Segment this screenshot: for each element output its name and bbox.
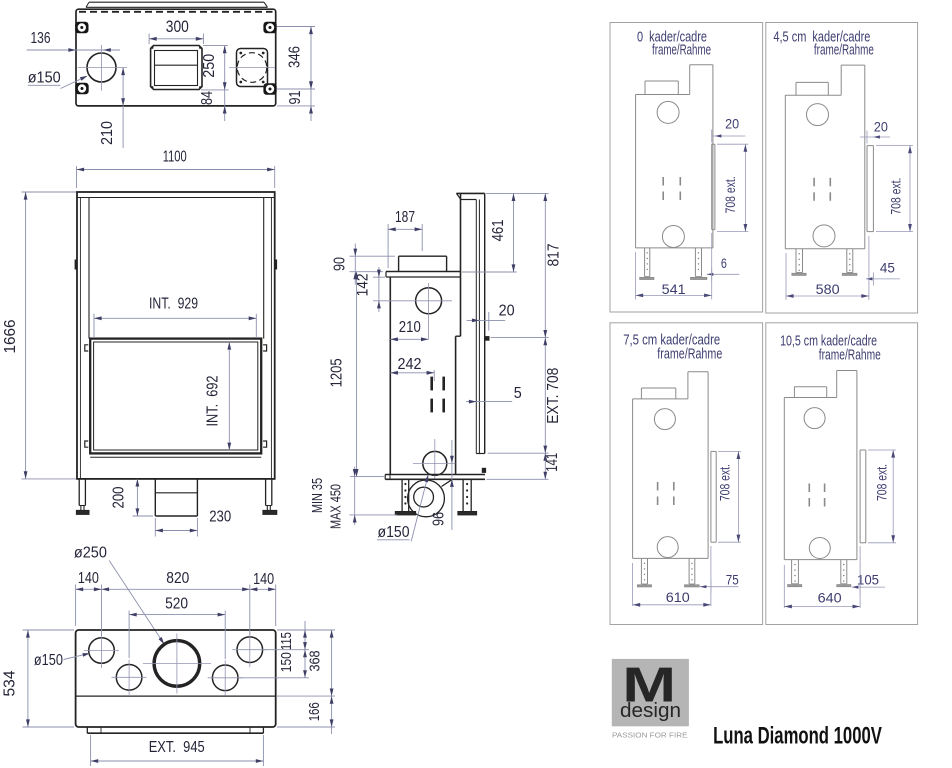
svg-text:817: 817 bbox=[546, 243, 563, 266]
svg-text:461: 461 bbox=[490, 219, 507, 241]
svg-text:140: 140 bbox=[253, 571, 274, 588]
svg-text:frame/Rahme: frame/Rahme bbox=[819, 347, 881, 364]
svg-text:20: 20 bbox=[499, 302, 515, 319]
svg-text:1666: 1666 bbox=[2, 319, 19, 353]
svg-text:INT. 929: INT. 929 bbox=[149, 295, 198, 312]
svg-text:INT. 692: INT. 692 bbox=[205, 375, 222, 426]
svg-text:84: 84 bbox=[199, 91, 216, 105]
svg-text:210: 210 bbox=[99, 121, 116, 145]
svg-text:250: 250 bbox=[201, 54, 218, 78]
svg-text:ø150: ø150 bbox=[378, 524, 410, 541]
svg-text:45: 45 bbox=[880, 260, 895, 276]
svg-text:708 ext.: 708 ext. bbox=[873, 464, 889, 501]
svg-text:346: 346 bbox=[286, 46, 303, 68]
svg-text:design: design bbox=[620, 700, 681, 722]
svg-text:75: 75 bbox=[726, 572, 739, 588]
svg-text:MAX 450: MAX 450 bbox=[328, 484, 345, 529]
svg-text:ø250: ø250 bbox=[74, 545, 107, 562]
svg-text:frame/Rahme: frame/Rahme bbox=[657, 346, 722, 363]
svg-text:187: 187 bbox=[395, 209, 415, 226]
svg-text:1100: 1100 bbox=[163, 148, 187, 165]
svg-text:141: 141 bbox=[544, 453, 561, 472]
svg-text:MIN 35: MIN 35 bbox=[309, 478, 326, 513]
svg-text:1205: 1205 bbox=[328, 358, 345, 387]
svg-text:115: 115 bbox=[278, 632, 295, 650]
svg-text:541: 541 bbox=[662, 281, 686, 297]
svg-text:136: 136 bbox=[31, 30, 51, 47]
svg-text:300: 300 bbox=[166, 18, 189, 36]
svg-text:580: 580 bbox=[816, 281, 840, 297]
svg-text:ø150: ø150 bbox=[28, 70, 61, 87]
svg-text:242: 242 bbox=[398, 356, 422, 373]
svg-text:6: 6 bbox=[721, 255, 727, 271]
svg-text:708 ext.: 708 ext. bbox=[717, 464, 733, 501]
svg-text:5: 5 bbox=[514, 385, 522, 402]
svg-text:640: 640 bbox=[818, 590, 842, 606]
svg-text:230: 230 bbox=[209, 508, 231, 525]
svg-text:166: 166 bbox=[306, 702, 323, 721]
svg-text:708 ext.: 708 ext. bbox=[887, 178, 903, 215]
svg-text:708 ext.: 708 ext. bbox=[722, 176, 738, 213]
svg-text:PASSION FOR FIRE: PASSION FOR FIRE bbox=[612, 730, 688, 739]
svg-text:frame/Rahme: frame/Rahme bbox=[814, 42, 874, 59]
svg-text:534: 534 bbox=[1, 670, 18, 696]
svg-text:368: 368 bbox=[307, 651, 324, 672]
svg-text:200: 200 bbox=[111, 486, 128, 508]
svg-text:EXT. 945: EXT. 945 bbox=[149, 739, 205, 756]
svg-text:Luna Diamond 1000V: Luna Diamond 1000V bbox=[713, 722, 882, 749]
svg-text:610: 610 bbox=[666, 589, 690, 605]
svg-text:96: 96 bbox=[431, 512, 448, 526]
svg-text:520: 520 bbox=[165, 596, 188, 613]
svg-text:frame/Rahme: frame/Rahme bbox=[652, 42, 711, 59]
svg-text:20: 20 bbox=[725, 116, 739, 132]
svg-text:90: 90 bbox=[332, 257, 349, 271]
svg-text:ø150: ø150 bbox=[34, 652, 63, 669]
svg-text:820: 820 bbox=[166, 570, 189, 587]
svg-text:150: 150 bbox=[278, 652, 295, 672]
svg-text:210: 210 bbox=[399, 319, 421, 336]
svg-text:20: 20 bbox=[874, 118, 888, 134]
svg-text:140: 140 bbox=[78, 570, 99, 587]
svg-text:EXT. 708: EXT. 708 bbox=[545, 368, 562, 424]
svg-text:91: 91 bbox=[287, 90, 304, 104]
